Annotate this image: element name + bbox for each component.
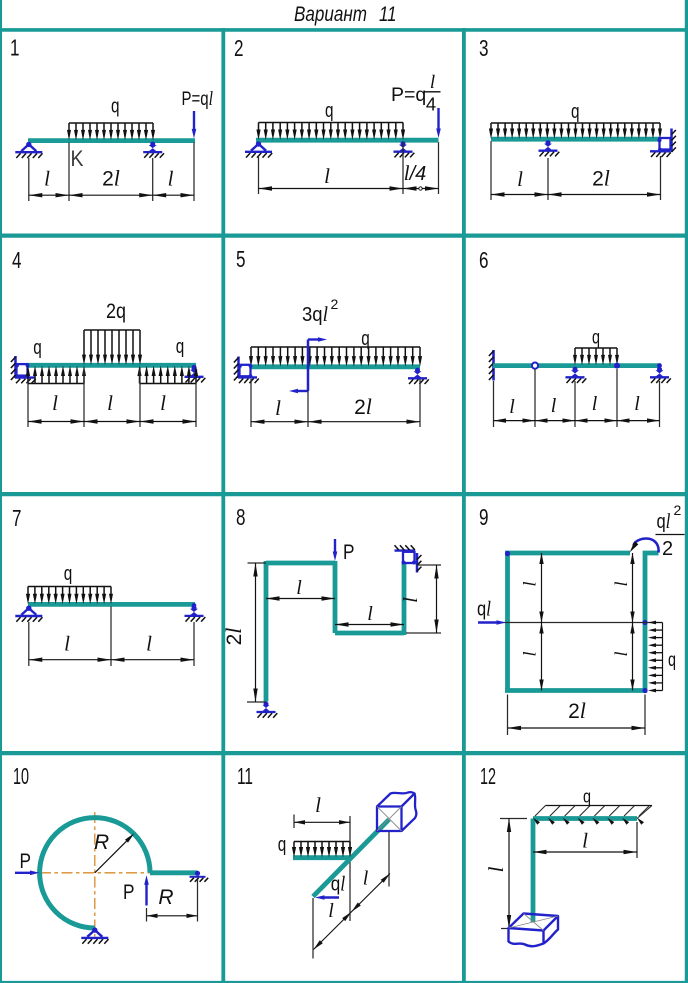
svg-text:l: l	[634, 393, 640, 415]
svg-text:l: l	[44, 167, 50, 191]
svg-text:q: q	[325, 100, 334, 122]
svg-text:l: l	[363, 868, 369, 890]
svg-text:q: q	[111, 96, 120, 118]
svg-text:2: 2	[674, 502, 682, 518]
svg-text:l: l	[592, 393, 598, 415]
svg-text:l: l	[611, 651, 631, 656]
svg-text:l: l	[582, 829, 588, 853]
svg-text:2: 2	[234, 35, 244, 61]
svg-text:Вариант: Вариант	[294, 3, 367, 26]
svg-text:q: q	[64, 563, 73, 585]
svg-text:2: 2	[331, 296, 339, 312]
svg-text:ql: ql	[331, 872, 346, 896]
svg-text:2l: 2l	[354, 394, 372, 419]
svg-text:3ql: 3ql	[302, 302, 328, 326]
svg-text:l: l	[611, 581, 631, 586]
svg-text:l: l	[430, 72, 435, 93]
svg-text:4: 4	[426, 94, 436, 115]
svg-text:R: R	[94, 831, 109, 854]
svg-text:l: l	[484, 866, 508, 872]
svg-text:2l: 2l	[102, 166, 120, 191]
svg-text:q: q	[176, 336, 185, 358]
svg-text:3: 3	[479, 35, 489, 61]
svg-text:7: 7	[12, 505, 22, 531]
svg-text:l: l	[520, 651, 540, 656]
svg-text:2l: 2l	[568, 698, 586, 723]
svg-text:l: l	[551, 395, 557, 417]
svg-text:5: 5	[236, 246, 246, 272]
svg-text:l: l	[367, 603, 373, 625]
svg-text:l: l	[107, 391, 113, 415]
svg-text:q: q	[668, 650, 676, 671]
svg-text:l: l	[324, 164, 330, 188]
svg-text:l: l	[64, 632, 70, 656]
svg-text:2l: 2l	[592, 166, 610, 191]
svg-text:1: 1	[10, 35, 20, 61]
svg-text:l: l	[520, 581, 540, 586]
svg-text:P=ql: P=ql	[182, 88, 214, 110]
svg-text:l: l	[517, 167, 523, 191]
svg-text:2: 2	[662, 538, 673, 560]
svg-text:l: l	[509, 396, 515, 418]
svg-text:10: 10	[13, 763, 29, 789]
svg-text:4: 4	[12, 247, 22, 273]
svg-text:ql: ql	[477, 597, 491, 621]
svg-text:q: q	[583, 786, 591, 807]
svg-text:11: 11	[237, 763, 253, 789]
svg-text:6: 6	[479, 247, 489, 273]
svg-text:l: l	[52, 391, 58, 415]
svg-text:11: 11	[379, 3, 397, 26]
svg-text:9: 9	[479, 504, 489, 530]
svg-text:2l: 2l	[221, 628, 246, 646]
svg-text:l: l	[328, 900, 334, 922]
svg-text:l: l	[275, 396, 281, 420]
svg-text:q: q	[278, 834, 287, 856]
svg-text:2q: 2q	[106, 300, 126, 323]
svg-text:q: q	[361, 328, 370, 350]
svg-text:q: q	[571, 101, 580, 123]
svg-text:q: q	[592, 328, 600, 349]
svg-text:K: K	[71, 146, 84, 171]
svg-text:q: q	[33, 337, 42, 359]
svg-text:l: l	[168, 167, 174, 191]
svg-text:P: P	[343, 541, 355, 564]
svg-text:P=q: P=q	[391, 84, 426, 106]
svg-text:R: R	[158, 886, 173, 909]
svg-text:12: 12	[480, 763, 496, 789]
svg-text:ql: ql	[657, 509, 671, 533]
svg-text:P: P	[20, 850, 32, 873]
svg-text:l: l	[160, 391, 166, 415]
svg-text:l: l	[296, 577, 302, 599]
svg-text:l: l	[400, 597, 422, 603]
svg-text:l: l	[315, 793, 321, 817]
svg-text:8: 8	[236, 504, 246, 530]
svg-text:l/4: l/4	[404, 161, 427, 185]
svg-text:P: P	[123, 881, 135, 904]
svg-text:l: l	[146, 632, 152, 656]
